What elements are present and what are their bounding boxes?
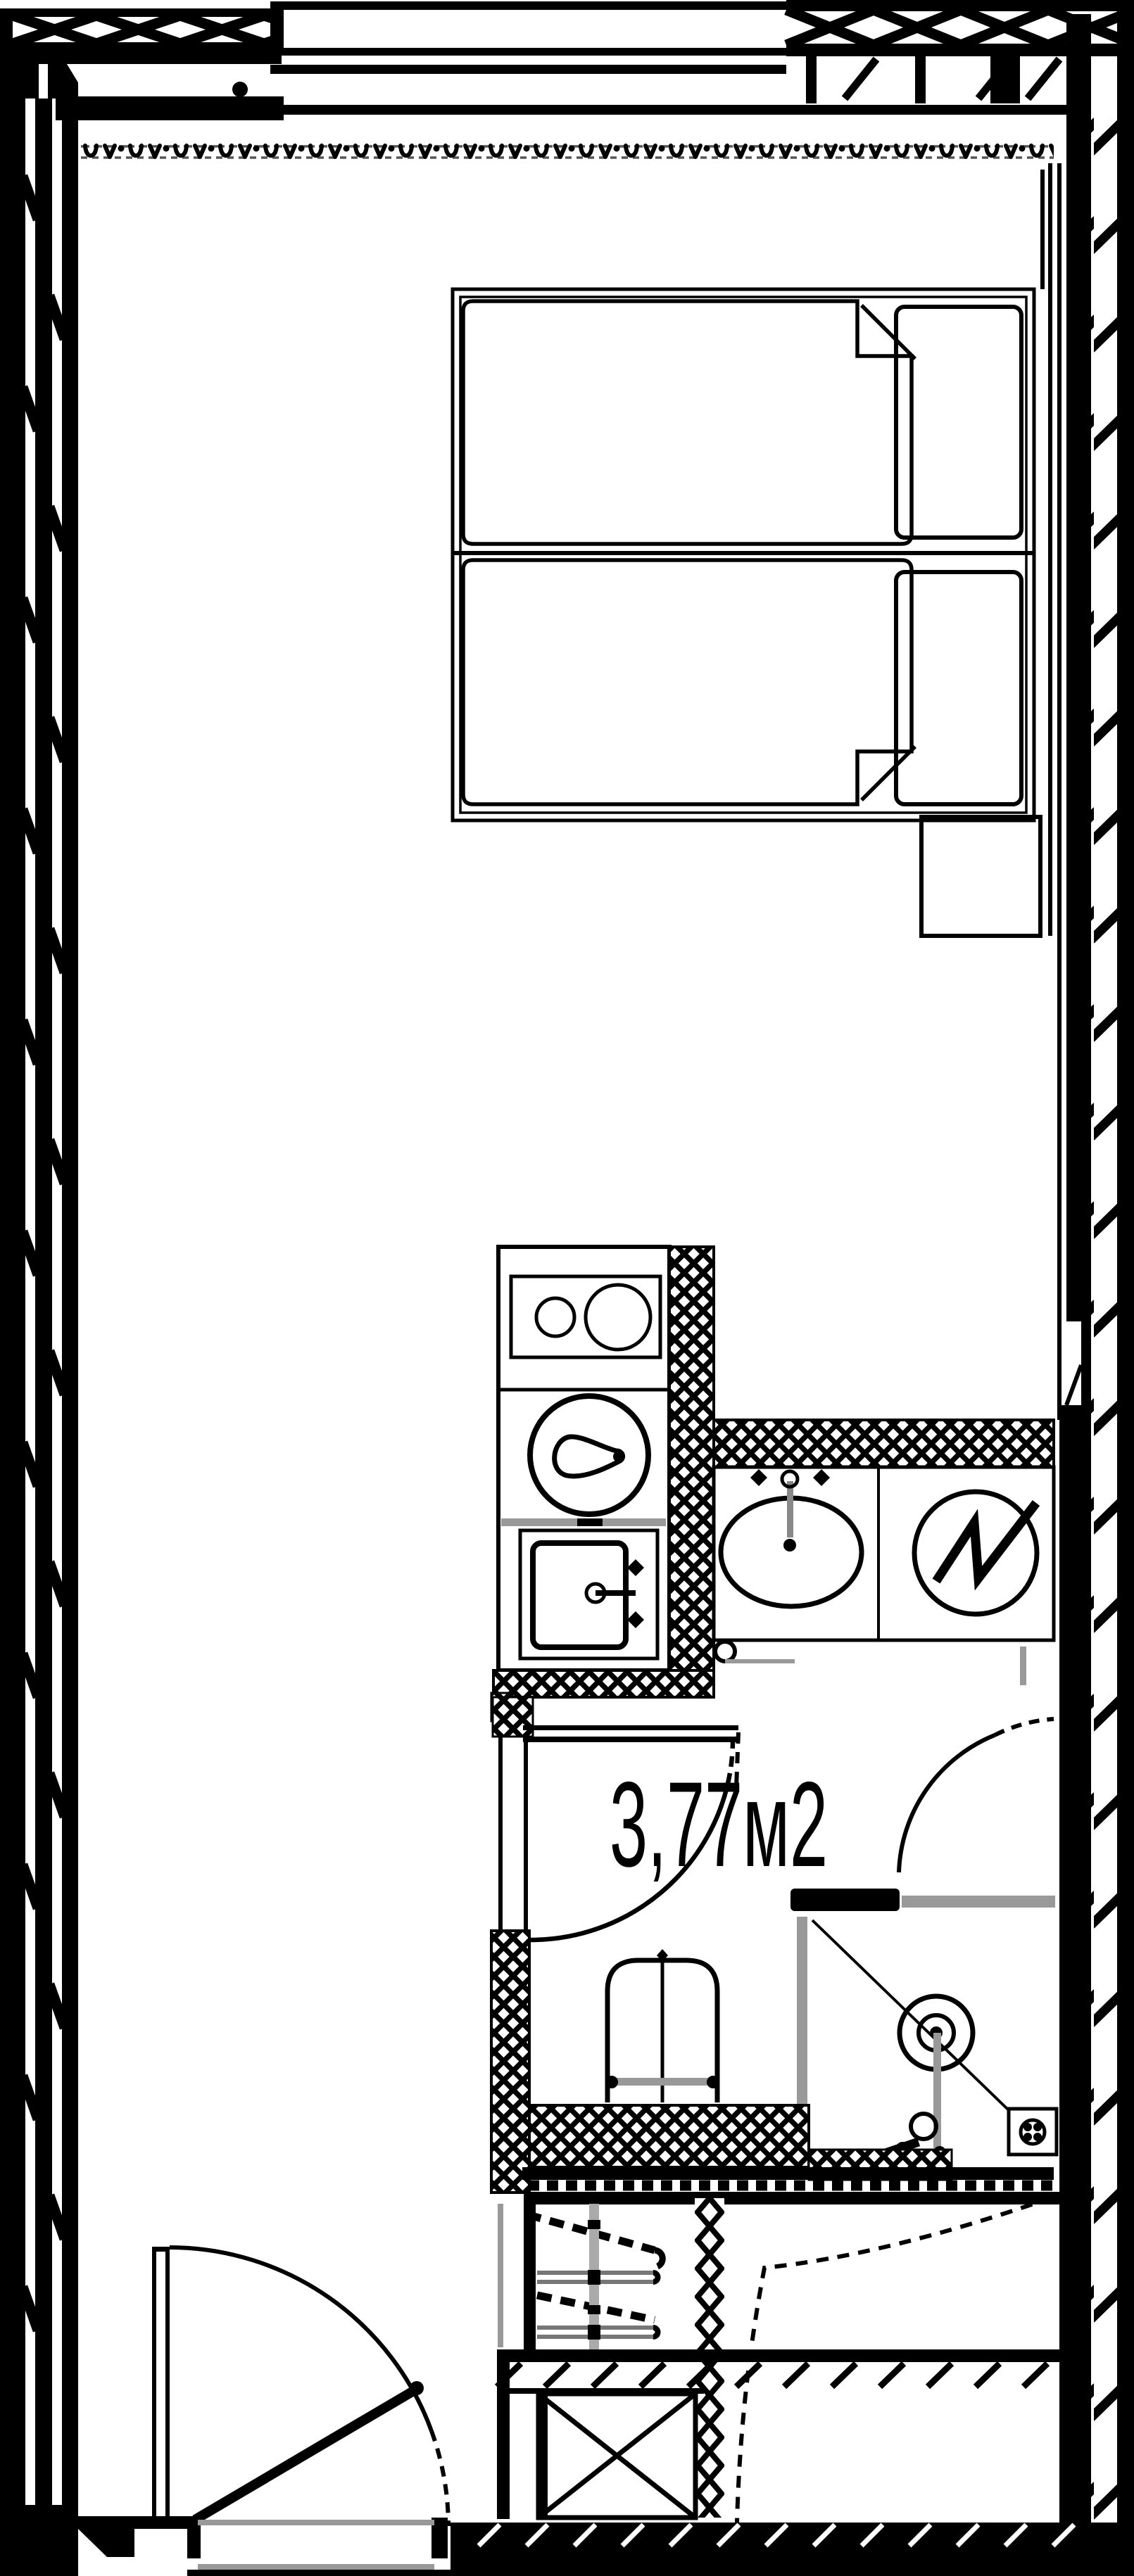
svg-text:3,77м2: 3,77м2 — [610, 1757, 828, 1892]
